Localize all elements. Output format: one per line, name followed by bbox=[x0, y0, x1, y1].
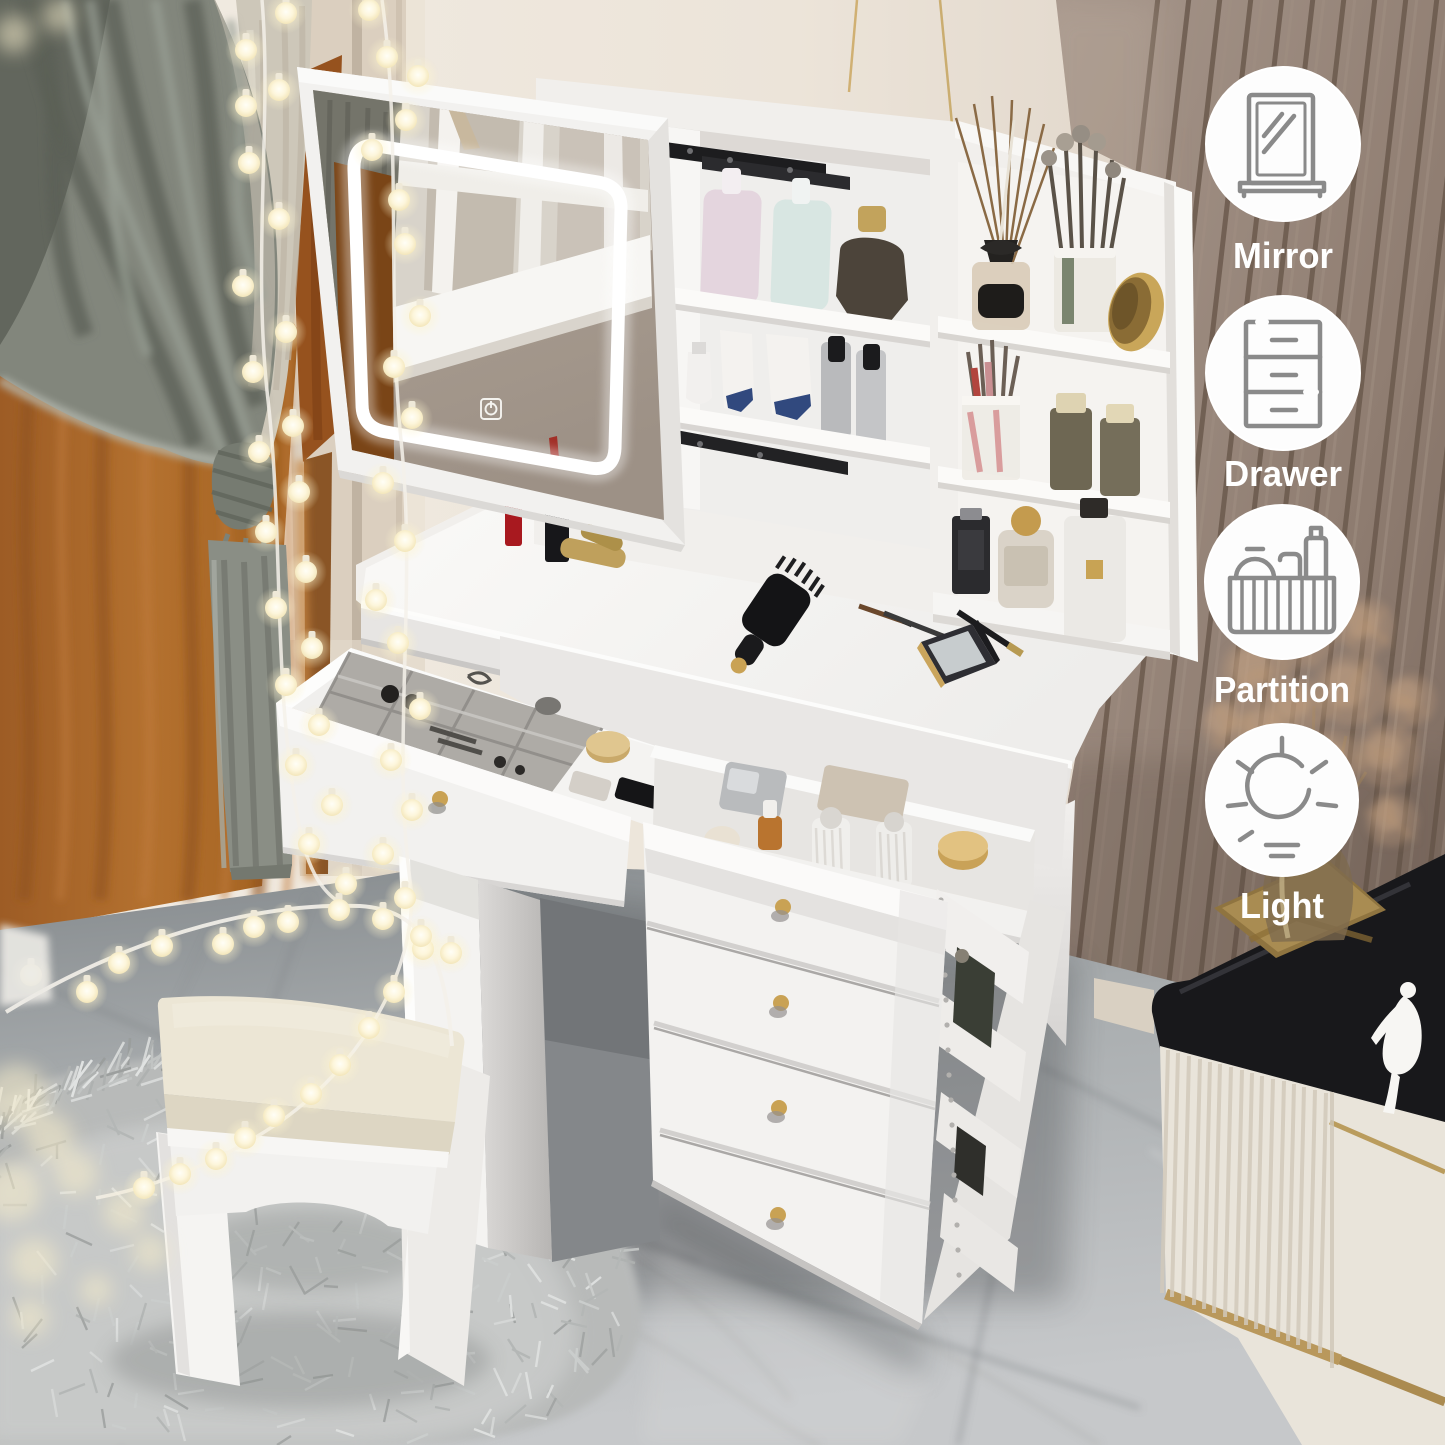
svg-text:Light: Light bbox=[1240, 885, 1324, 926]
svg-text:Drawer: Drawer bbox=[1224, 453, 1342, 494]
svg-text:Mirror: Mirror bbox=[1233, 235, 1333, 276]
svg-text:Partition: Partition bbox=[1214, 669, 1350, 710]
